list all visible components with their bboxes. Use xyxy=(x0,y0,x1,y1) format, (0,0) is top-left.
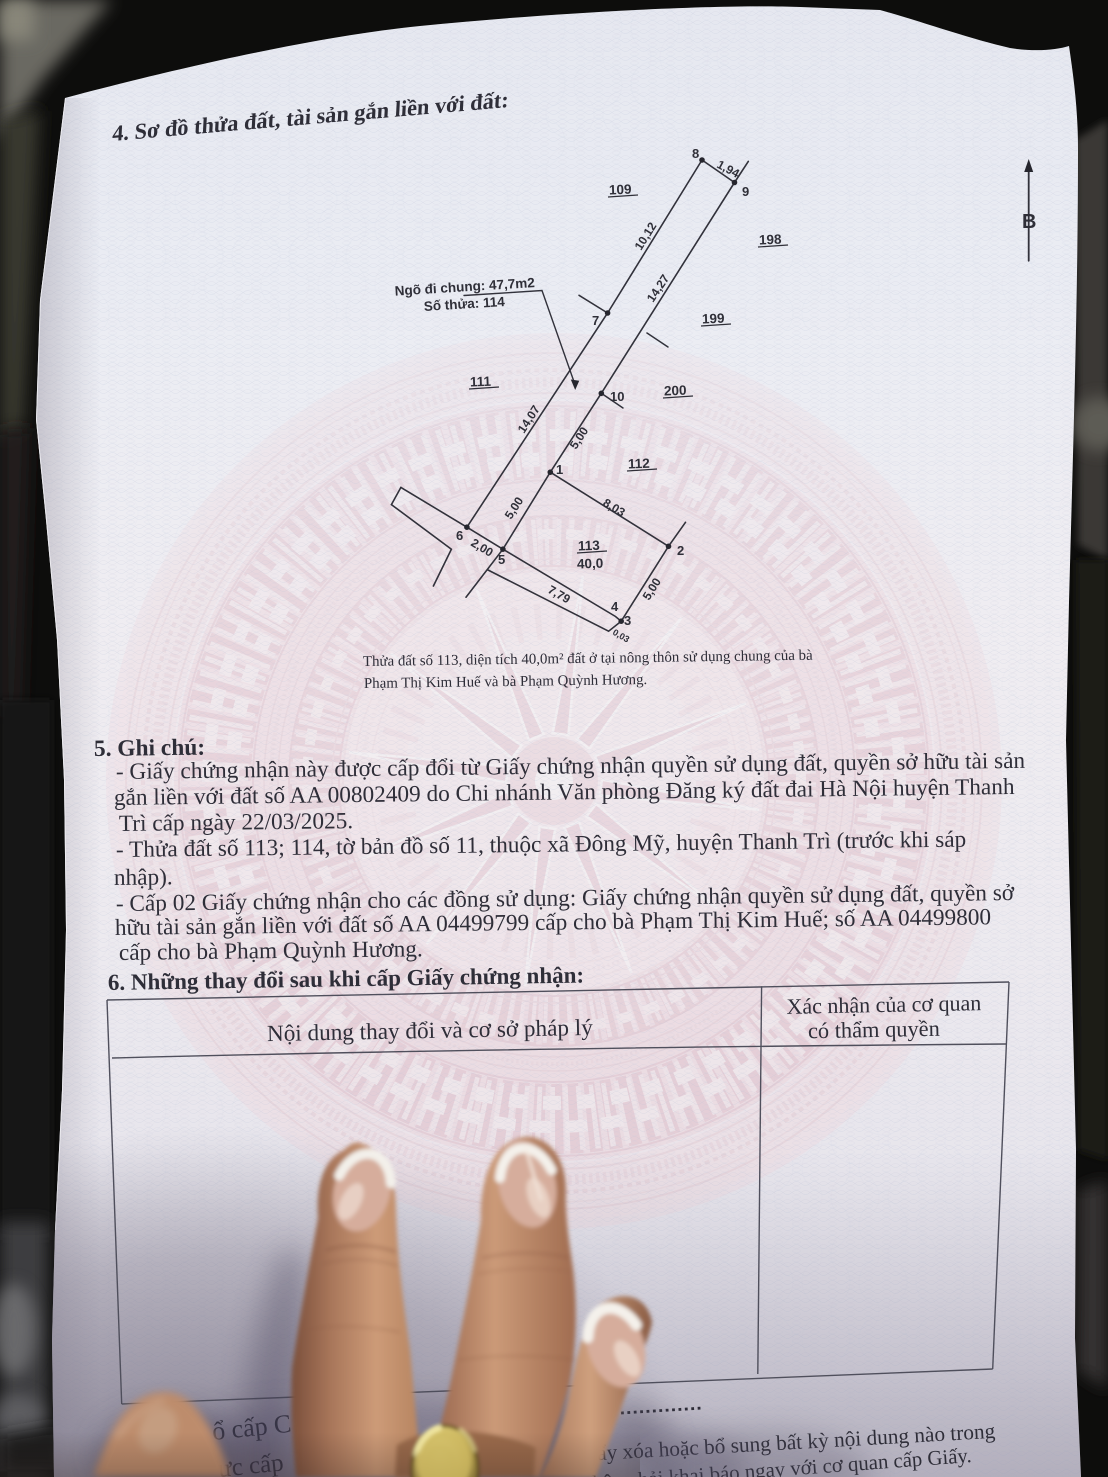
svg-text:40,0: 40,0 xyxy=(577,556,604,572)
svg-text:1: 1 xyxy=(556,462,563,477)
svg-text:4: 4 xyxy=(611,599,619,614)
svg-text:2: 2 xyxy=(677,543,684,558)
svg-text:111: 111 xyxy=(470,374,492,390)
svg-text:Xác nhận của cơ quan: Xác nhận của cơ quan xyxy=(786,990,981,1019)
svg-text:cấp cho bà Phạm Quỳnh Hương.: cấp cho bà Phạm Quỳnh Hương. xyxy=(119,936,423,966)
svg-text:7: 7 xyxy=(592,313,599,328)
svg-text:Trì cấp ngày 22/03/2025.: Trì cấp ngày 22/03/2025. xyxy=(119,808,354,837)
svg-text:10: 10 xyxy=(610,389,624,404)
svg-text:B: B xyxy=(1022,211,1036,233)
svg-text:8: 8 xyxy=(692,146,699,161)
svg-text:9: 9 xyxy=(742,184,749,199)
svg-text:có thẩm quyền: có thẩm quyền xyxy=(808,1016,940,1044)
svg-text:5: 5 xyxy=(498,552,505,567)
svg-text:nhập).: nhập). xyxy=(114,864,173,891)
svg-text:112: 112 xyxy=(628,456,650,472)
svg-text:3: 3 xyxy=(624,613,631,628)
svg-text:6: 6 xyxy=(456,528,463,543)
